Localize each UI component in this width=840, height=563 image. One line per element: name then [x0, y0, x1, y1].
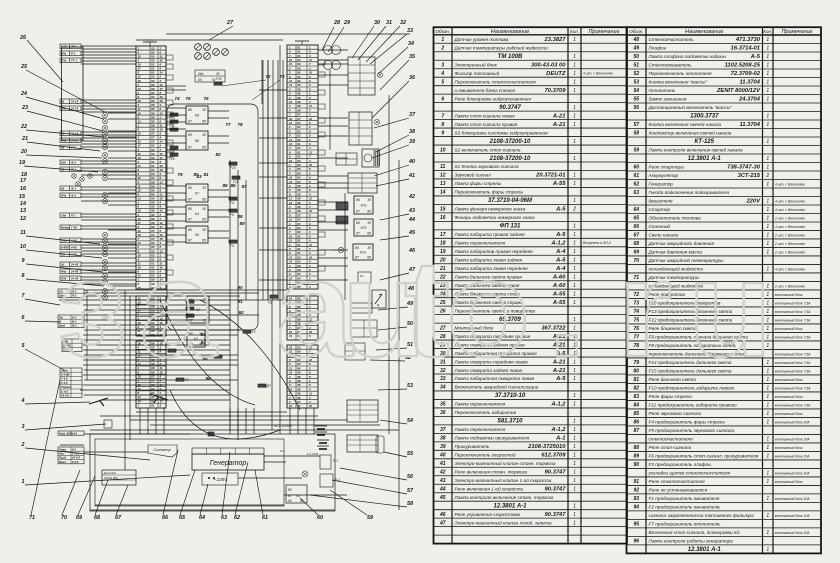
- svg-text:Отопитель: Отопитель: [649, 88, 676, 93]
- svg-text:55: 55: [633, 97, 639, 103]
- svg-text:2На: 2На: [60, 194, 67, 198]
- svg-text:2 шт. с Вентилем: 2 шт. с Вентилем: [774, 284, 805, 288]
- svg-text:36: 36: [440, 410, 446, 416]
- svg-text:1: 1: [573, 393, 576, 399]
- svg-text:10: 10: [20, 244, 26, 250]
- svg-text:сигнала загрязненности топливн: сигнала загрязненности топливного фильтр…: [649, 513, 755, 518]
- svg-text:16.3714-01: 16.3714-01: [731, 46, 760, 52]
- svg-text:8: 8: [22, 273, 25, 279]
- svg-text:50: 50: [633, 54, 639, 60]
- svg-text:1: 1: [766, 479, 769, 485]
- svg-text:4 шт. с Вентилем: 4 шт. с Вентилем: [775, 199, 805, 203]
- svg-text:2108-3725010: 2108-3725010: [527, 444, 566, 450]
- svg-text:Реле не устанавливается: Реле не устанавливается: [649, 488, 708, 493]
- svg-text:75: 75: [185, 96, 191, 101]
- svg-text:Реле включения 1-ой скорости: Реле включения 1-ой скорости: [455, 485, 524, 491]
- svg-text:69: 69: [76, 515, 82, 521]
- svg-text:4 шт. с Вентилем: 4 шт. с Вентилем: [583, 72, 613, 76]
- svg-text:Р-1: Р-1: [335, 478, 340, 482]
- svg-text:Сигнатор: Сигнатор: [153, 448, 170, 452]
- svg-text:3: 3: [441, 62, 444, 68]
- svg-text:1: 1: [766, 437, 769, 443]
- svg-text:86: 86: [356, 198, 360, 202]
- svg-text:58: 58: [407, 501, 413, 507]
- svg-text:86: 86: [188, 207, 192, 211]
- svg-text:51: 51: [633, 63, 639, 69]
- svg-text:1: 1: [573, 181, 576, 187]
- svg-text:1: 1: [573, 37, 576, 43]
- svg-text:1: 1: [766, 37, 769, 43]
- svg-text:монтажный блок 7,5А: монтажный блок 7,5А: [775, 301, 811, 305]
- svg-text:1: 1: [766, 139, 769, 145]
- svg-text:К3: К3: [296, 494, 300, 498]
- svg-text:11.3704: 11.3704: [739, 122, 760, 128]
- svg-text:85: 85: [202, 120, 206, 124]
- svg-text:581.3710: 581.3710: [497, 419, 523, 425]
- svg-text:66: 66: [162, 515, 169, 521]
- svg-text:47: 47: [439, 520, 446, 526]
- svg-text:монтажный блок 10А: монтажный блок 10А: [775, 497, 810, 501]
- svg-text:монтажный блок 10А: монтажный блок 10А: [775, 514, 810, 518]
- svg-text:43: 43: [408, 208, 415, 214]
- svg-text:Ж-1: Ж-1: [70, 161, 77, 165]
- svg-text:66: 66: [633, 224, 639, 230]
- svg-text:12.3801 А-1: 12.3801 А-1: [493, 503, 527, 509]
- svg-text:12: 12: [440, 173, 446, 179]
- svg-text:Кол.: Кол.: [763, 29, 772, 34]
- svg-text:4: 4: [21, 398, 25, 404]
- svg-text:67: 67: [115, 515, 122, 521]
- svg-text:25: 25: [20, 64, 28, 70]
- svg-text:Генератор: Генератор: [210, 460, 247, 467]
- svg-text:Лампа плафона подсветки кабины: Лампа плафона подсветки кабины: [648, 54, 727, 59]
- svg-text:1НВ: 1НВ: [61, 45, 67, 49]
- svg-text:F4: F4: [230, 201, 234, 205]
- svg-text:F5 предохранитель звукового си: F5 предохранитель звукового сигнала,: [649, 428, 736, 433]
- svg-text:471.3730: 471.3730: [735, 37, 761, 43]
- svg-text:Т-1: Т-1: [71, 146, 76, 150]
- svg-text:и омывателя бачка стекол: и омывателя бачка стекол: [455, 88, 516, 93]
- svg-text:Примечание: Примечание: [588, 29, 619, 35]
- svg-text:1: 1: [573, 453, 576, 459]
- svg-text:3: 3: [22, 424, 25, 430]
- svg-text:65: 65: [179, 515, 186, 521]
- svg-text:Реле включения стоян. тормоза: Реле включения стоян. тормоза: [455, 470, 528, 475]
- svg-text:23: 23: [21, 105, 28, 111]
- svg-text:74: 74: [174, 96, 180, 101]
- svg-text:1: 1: [573, 173, 576, 179]
- svg-text:X1: X1: [150, 404, 155, 408]
- svg-text:1: 1: [573, 224, 576, 230]
- svg-text:Включения стоп-сигнала, Блокир: Включения стоп-сигнала, Блокировки г/с: [649, 530, 741, 535]
- svg-text:монтажный блок: монтажный блок: [775, 412, 803, 416]
- svg-text:1102.5208-25: 1102.5208-25: [725, 63, 761, 69]
- svg-text:Электронный блок: Электронный блок: [455, 61, 498, 67]
- svg-text:F16: F16: [216, 77, 222, 81]
- svg-text:612.3709: 612.3709: [541, 453, 566, 459]
- svg-text:F11 предохранитель габарита пр: F11 предохранитель габарита правого: [649, 403, 737, 408]
- svg-text:4На: 4На: [60, 139, 67, 143]
- svg-text:5: 5: [441, 79, 444, 85]
- svg-text:86: 86: [188, 186, 192, 190]
- svg-text:6-4,5: 6-4,5: [72, 460, 79, 464]
- svg-text:3а: 3а: [61, 146, 65, 150]
- svg-text:Переключатель скоростей: Переключатель скоростей: [455, 452, 516, 458]
- svg-text:76: 76: [203, 96, 209, 101]
- svg-text:71: 71: [29, 515, 35, 521]
- svg-text:Электро-магнитный клапан 1-ой: Электро-магнитный клапан 1-ой скорости: [455, 477, 552, 483]
- svg-text:53: 53: [633, 80, 639, 86]
- svg-text:ТМ 100В: ТМ 100В: [498, 54, 523, 60]
- svg-text:86: 86: [230, 183, 236, 188]
- svg-text:Обогатитель топлива: Обогатитель топлива: [649, 216, 702, 221]
- svg-text:16: 16: [440, 215, 446, 221]
- svg-text:10: 10: [309, 404, 313, 408]
- svg-text:39: 39: [409, 139, 415, 145]
- svg-text:91: 91: [633, 479, 639, 485]
- svg-text:монтажный блок 20А: монтажный блок 20А: [775, 454, 810, 458]
- svg-text:56: 56: [288, 499, 292, 503]
- svg-text:77: 77: [225, 122, 231, 127]
- svg-text:А-5: А-5: [555, 207, 566, 213]
- svg-text:57: 57: [407, 488, 414, 494]
- svg-text:а: а: [140, 232, 218, 386]
- svg-text:Реле стартера: Реле стартера: [649, 165, 685, 170]
- svg-text:монтажный блок 7,5А: монтажный блок 7,5А: [775, 352, 811, 356]
- svg-text:Лампа контроля работы генерато: Лампа контроля работы генератора: [648, 539, 734, 544]
- svg-text:Дистанционный включатель “масс: Дистанционный включатель “массы”: [648, 104, 733, 110]
- svg-text:20: 20: [20, 149, 27, 155]
- svg-text:49: 49: [632, 46, 639, 52]
- svg-text:Наименование: Наименование: [685, 29, 724, 35]
- svg-text:30: 30: [202, 186, 206, 190]
- svg-text:94: 94: [633, 505, 639, 511]
- svg-text:23.3827: 23.3827: [544, 37, 567, 43]
- svg-text:20.3721-01: 20.3721-01: [535, 173, 565, 179]
- svg-text:Лампа фары стрелы: Лампа фары стрелы: [454, 181, 502, 186]
- svg-text:300-43-03 00: 300-43-03 00: [531, 62, 566, 68]
- svg-text:Реле звукового сигнала: Реле звукового сигнала: [649, 411, 702, 416]
- svg-text:Лампа переключателя: Лампа переключателя: [454, 427, 506, 432]
- svg-text:Г-45: Г-45: [71, 226, 77, 230]
- svg-text:К9: К9: [195, 114, 199, 118]
- svg-text:+Вк: +Вк: [61, 214, 67, 218]
- svg-text:37: 37: [440, 427, 446, 433]
- svg-text:А-21: А-21: [552, 113, 566, 119]
- svg-text:F7 предохранитель отопителя,: F7 предохранитель отопителя,: [649, 522, 721, 527]
- svg-text:Контактор включения свечей нак: Контактор включения свечей накала: [649, 130, 732, 136]
- svg-text:2108-37200-10: 2108-37200-10: [489, 139, 531, 145]
- svg-text:1: 1: [573, 88, 576, 94]
- svg-text:Электро-магнитный клапан стоян: Электро-магнитный клапан стоян. тормоза: [455, 460, 556, 466]
- svg-text:81: 81: [203, 172, 209, 177]
- svg-text:Лампа переключателя: Лампа переключателя: [454, 402, 506, 407]
- svg-text:36: 36: [409, 75, 416, 81]
- svg-text:2: 2: [21, 442, 25, 448]
- svg-text:А-1,2: А-1,2: [550, 427, 566, 433]
- svg-text:11: 11: [20, 230, 26, 236]
- svg-text:Реле блокировки гидроуправлени: Реле блокировки гидроуправления: [455, 96, 532, 101]
- svg-text:62: 62: [234, 515, 240, 521]
- svg-text:Rобщ: Rобщ: [61, 226, 69, 230]
- svg-text:К7а: К7а: [361, 204, 367, 208]
- svg-text:87: 87: [356, 210, 360, 214]
- svg-text:1: 1: [766, 207, 769, 213]
- svg-text:1: 1: [573, 427, 576, 433]
- svg-text:F5: F5: [230, 213, 234, 217]
- svg-text:Прикуриватель: Прикуриватель: [455, 444, 490, 449]
- svg-text:11: 11: [440, 164, 445, 170]
- svg-text:Переключатель габаритов: Переключатель габаритов: [455, 410, 517, 415]
- svg-text:F6: F6: [230, 244, 234, 248]
- svg-text:54: 54: [407, 418, 413, 424]
- svg-text:65: 65: [633, 216, 639, 222]
- svg-text:1: 1: [573, 105, 576, 111]
- svg-text:85: 85: [202, 198, 206, 202]
- svg-text:1: 1: [766, 165, 769, 171]
- svg-text:10б: 10б: [61, 161, 66, 165]
- svg-text:35: 35: [409, 54, 416, 60]
- svg-text:13: 13: [20, 208, 26, 214]
- svg-text:78: 78: [237, 122, 243, 127]
- svg-text:68: 68: [94, 515, 100, 521]
- svg-text:72.3709-02: 72.3709-02: [731, 71, 761, 77]
- svg-text:83: 83: [633, 394, 639, 400]
- svg-text:1: 1: [573, 198, 576, 204]
- svg-text:39: 39: [440, 444, 446, 450]
- svg-text:85: 85: [202, 146, 206, 150]
- svg-text:44: 44: [408, 217, 415, 223]
- svg-text:86: 86: [356, 221, 360, 225]
- svg-text:55: 55: [407, 451, 414, 457]
- svg-text:Звуковой сигнал: Звуковой сигнал: [455, 172, 492, 178]
- svg-text:3б: 3б: [61, 100, 65, 104]
- svg-text:1: 1: [766, 54, 769, 60]
- svg-text:Датчик температуры рабочей жид: Датчик температуры рабочей жидкости: [454, 45, 549, 51]
- svg-text:90: 90: [633, 462, 639, 468]
- svg-text:Встроена в ЭП-4: Встроена в ЭП-4: [583, 241, 611, 245]
- svg-text:1: 1: [766, 224, 769, 230]
- svg-text:К2: К2: [212, 78, 216, 82]
- svg-text:4: 4: [440, 71, 444, 77]
- svg-text:96: 96: [633, 539, 639, 545]
- svg-text:Ж-1: Ж-1: [70, 168, 77, 172]
- svg-text:12.3801 А-1: 12.3801 А-1: [688, 547, 722, 553]
- svg-text:2 шт. с Вентилем: 2 шт. с Вентилем: [774, 250, 805, 254]
- svg-text:А-1,2: А-1,2: [550, 402, 566, 408]
- svg-text:Наименование: Наименование: [491, 29, 530, 35]
- svg-text:3СТ-215х2: 3СТ-215х2: [274, 424, 292, 428]
- svg-text:14-4,5: 14-4,5: [61, 394, 69, 398]
- svg-text:83: 83: [196, 174, 202, 179]
- svg-text:F2: F2: [252, 330, 256, 334]
- svg-text:монтажный блок: монтажный блок: [775, 446, 803, 450]
- svg-text:К9: К9: [198, 78, 202, 82]
- svg-text:П-1: П-1: [71, 214, 76, 218]
- svg-text:14-15: 14-15: [71, 100, 79, 104]
- svg-text:Аккумулятор: Аккумулятор: [648, 173, 679, 178]
- svg-text:6: 6: [441, 96, 444, 102]
- svg-text:85: 85: [367, 210, 371, 214]
- svg-text:Стартер: Стартер: [649, 207, 671, 212]
- svg-text:t: t: [404, 232, 450, 386]
- svg-text:Генератор: Генератор: [649, 182, 674, 187]
- svg-text:монтажный блок 20А: монтажный блок 20А: [775, 420, 810, 424]
- svg-text:1б: 1б: [61, 132, 65, 136]
- svg-text:ТГ-1: ТГ-1: [71, 59, 77, 63]
- svg-text:2108-37200-10: 2108-37200-10: [489, 156, 531, 162]
- svg-text:Ж-1: Ж-1: [70, 194, 77, 198]
- svg-text:двигателя: двигателя: [649, 199, 674, 204]
- svg-text:37.3710-04-06М: 37.3710-04-06М: [488, 198, 533, 204]
- svg-text:Дисплей: Дисплей: [103, 471, 116, 475]
- svg-text:40: 40: [408, 159, 415, 165]
- svg-text:1: 1: [766, 114, 769, 120]
- svg-text:1: 1: [573, 520, 576, 526]
- svg-text:89: 89: [239, 221, 245, 226]
- svg-text:Плафон: Плафон: [649, 46, 667, 51]
- svg-text:А-55: А-55: [552, 181, 566, 187]
- svg-text:Жид. 6(30)4,5: Жид. 6(30)4,5: [58, 431, 77, 435]
- svg-text:92: 92: [238, 310, 244, 315]
- svg-text:85: 85: [633, 411, 639, 417]
- svg-text:1: 1: [573, 419, 576, 425]
- svg-text:Замок зажигания: Замок зажигания: [649, 97, 687, 102]
- svg-text:64: 64: [633, 207, 639, 213]
- svg-text:2: 2: [572, 207, 576, 213]
- svg-text:1: 1: [766, 496, 769, 502]
- svg-text:S2 включатель стоп-сигнала: S2 включатель стоп-сигнала: [455, 147, 521, 152]
- svg-text:12.3801 А-1: 12.3801 А-1: [688, 156, 722, 162]
- svg-text:28: 28: [333, 20, 340, 26]
- svg-text:58: 58: [633, 131, 639, 137]
- svg-text:14-15: 14-15: [71, 139, 79, 143]
- svg-text:стеклоочистителя: стеклоочистителя: [649, 437, 694, 442]
- svg-text:F14: F14: [169, 157, 175, 161]
- svg-text:91: 91: [237, 299, 243, 304]
- svg-text:1: 1: [573, 402, 576, 408]
- svg-text:19: 19: [19, 160, 25, 166]
- svg-text:21: 21: [21, 136, 28, 142]
- svg-text:46: 46: [439, 512, 446, 518]
- svg-text:1: 1: [441, 37, 444, 43]
- svg-text:86: 86: [188, 108, 192, 112]
- svg-text:84: 84: [633, 403, 639, 409]
- svg-text:1: 1: [766, 156, 769, 162]
- svg-text:4 шт. с Вентилем: 4 шт. с Вентилем: [775, 225, 805, 229]
- svg-text:S1 Кнопка звукового сигнала: S1 Кнопка звукового сигнала: [455, 164, 519, 169]
- svg-text:Реле фары стрелы: Реле фары стрелы: [649, 394, 693, 399]
- svg-text:r: r: [618, 232, 672, 386]
- svg-text:DEUTZ: DEUTZ: [546, 71, 566, 77]
- svg-text:38: 38: [440, 436, 446, 442]
- svg-text:~ 220V: ~ 220V: [213, 477, 228, 482]
- svg-text:Ж-1: Ж-1: [70, 187, 77, 191]
- svg-text:87: 87: [288, 494, 292, 498]
- svg-text:5: 5: [160, 404, 162, 408]
- svg-text:Кол.: Кол.: [570, 29, 579, 34]
- svg-text:60: 60: [633, 165, 639, 171]
- svg-text:15: 15: [19, 194, 26, 200]
- svg-text:Р-4: Р-4: [280, 449, 285, 453]
- svg-text:12: 12: [20, 216, 26, 222]
- svg-text:45: 45: [439, 495, 446, 501]
- svg-text:монтажный блок: монтажный блок: [775, 395, 803, 399]
- svg-text:9: 9: [22, 258, 25, 264]
- svg-text:монтажный блок 7,5А: монтажный блок 7,5А: [775, 403, 811, 407]
- svg-text:31: 31: [386, 20, 392, 26]
- svg-text:К7: К7: [195, 192, 199, 196]
- svg-text:монтажный блок 7,5А: монтажный блок 7,5А: [775, 335, 811, 339]
- svg-text:37: 37: [409, 112, 416, 118]
- svg-text:33: 33: [407, 28, 413, 34]
- svg-text:F6 предохранитель стоп-сигнал,: F6 предохранитель стоп-сигнал, прикурива…: [649, 454, 759, 459]
- svg-text:62: 62: [633, 182, 639, 188]
- svg-text:1: 1: [766, 445, 769, 451]
- svg-text:14-15: 14-15: [71, 107, 79, 111]
- svg-text:F2 предохранитель омывателя,: F2 предохранитель омывателя,: [649, 505, 721, 510]
- svg-text:2 шт. с Вентилем: 2 шт. с Вентилем: [774, 233, 805, 237]
- svg-text:1: 1: [573, 444, 576, 450]
- svg-text:57: 57: [633, 122, 639, 128]
- svg-text:А-5: А-5: [750, 54, 761, 60]
- svg-text:Стеклоочиститель: Стеклоочиститель: [649, 37, 695, 42]
- svg-text:4На: 4На: [60, 52, 67, 56]
- svg-text:1: 1: [766, 420, 769, 426]
- svg-text:86: 86: [633, 420, 639, 426]
- svg-text:37.3710-10: 37.3710-10: [495, 393, 526, 399]
- svg-text:88: 88: [633, 445, 639, 451]
- svg-text:монтажный блок: монтажный блок: [775, 378, 803, 382]
- svg-text:63: 63: [633, 190, 639, 196]
- svg-text:5: 5: [22, 343, 26, 349]
- svg-text:70.3709: 70.3709: [545, 88, 567, 94]
- svg-text:F4 предохранитель фары стрелы: F4 предохранитель фары стрелы: [649, 420, 726, 425]
- svg-text:7: 7: [138, 404, 140, 408]
- svg-text:1: 1: [573, 139, 576, 145]
- svg-text:738-3747-30: 738-3747-30: [727, 165, 761, 171]
- svg-text:1: 1: [22, 479, 25, 485]
- svg-text:o: o: [446, 232, 530, 386]
- svg-text:1: 1: [766, 216, 769, 222]
- svg-text:К9а: К9а: [198, 72, 204, 76]
- svg-text:35: 35: [440, 402, 446, 408]
- svg-text:КТ-125: КТ-125: [695, 139, 715, 145]
- svg-text:ФП 131: ФП 131: [500, 224, 521, 230]
- svg-text:54: 54: [633, 88, 639, 94]
- svg-text:15: 15: [440, 207, 446, 213]
- svg-text:60: 60: [317, 515, 323, 521]
- svg-text:30: 30: [367, 221, 371, 225]
- svg-text:4 шт. с Вентилем: 4 шт. с Вентилем: [775, 182, 805, 186]
- svg-text:2б: 2б: [60, 187, 65, 191]
- svg-text:1: 1: [766, 513, 769, 519]
- svg-text:41: 41: [408, 173, 415, 179]
- svg-text:Лампа фонаря номерного знака: Лампа фонаря номерного знака: [454, 207, 526, 212]
- svg-text:86: 86: [188, 133, 192, 137]
- svg-text:Переключатель отопителя: Переключатель отопителя: [649, 71, 712, 76]
- svg-text:34: 34: [408, 41, 414, 47]
- svg-text:3СТ-215: 3СТ-215: [738, 173, 761, 179]
- svg-text:Соленоид: Соленоид: [649, 224, 671, 229]
- svg-text:Лампа подсветки прикуривателя: Лампа подсветки прикуривателя: [454, 436, 530, 441]
- svg-text:Реле управления скоростями: Реле управления скоростями: [455, 512, 521, 517]
- svg-text:1: 1: [573, 478, 576, 484]
- svg-text:1: 1: [573, 461, 576, 467]
- svg-text:1: 1: [573, 71, 576, 77]
- svg-text:52: 52: [633, 71, 639, 77]
- svg-text:F1 предохранитель омывателя: F1 предохранитель омывателя: [649, 496, 720, 501]
